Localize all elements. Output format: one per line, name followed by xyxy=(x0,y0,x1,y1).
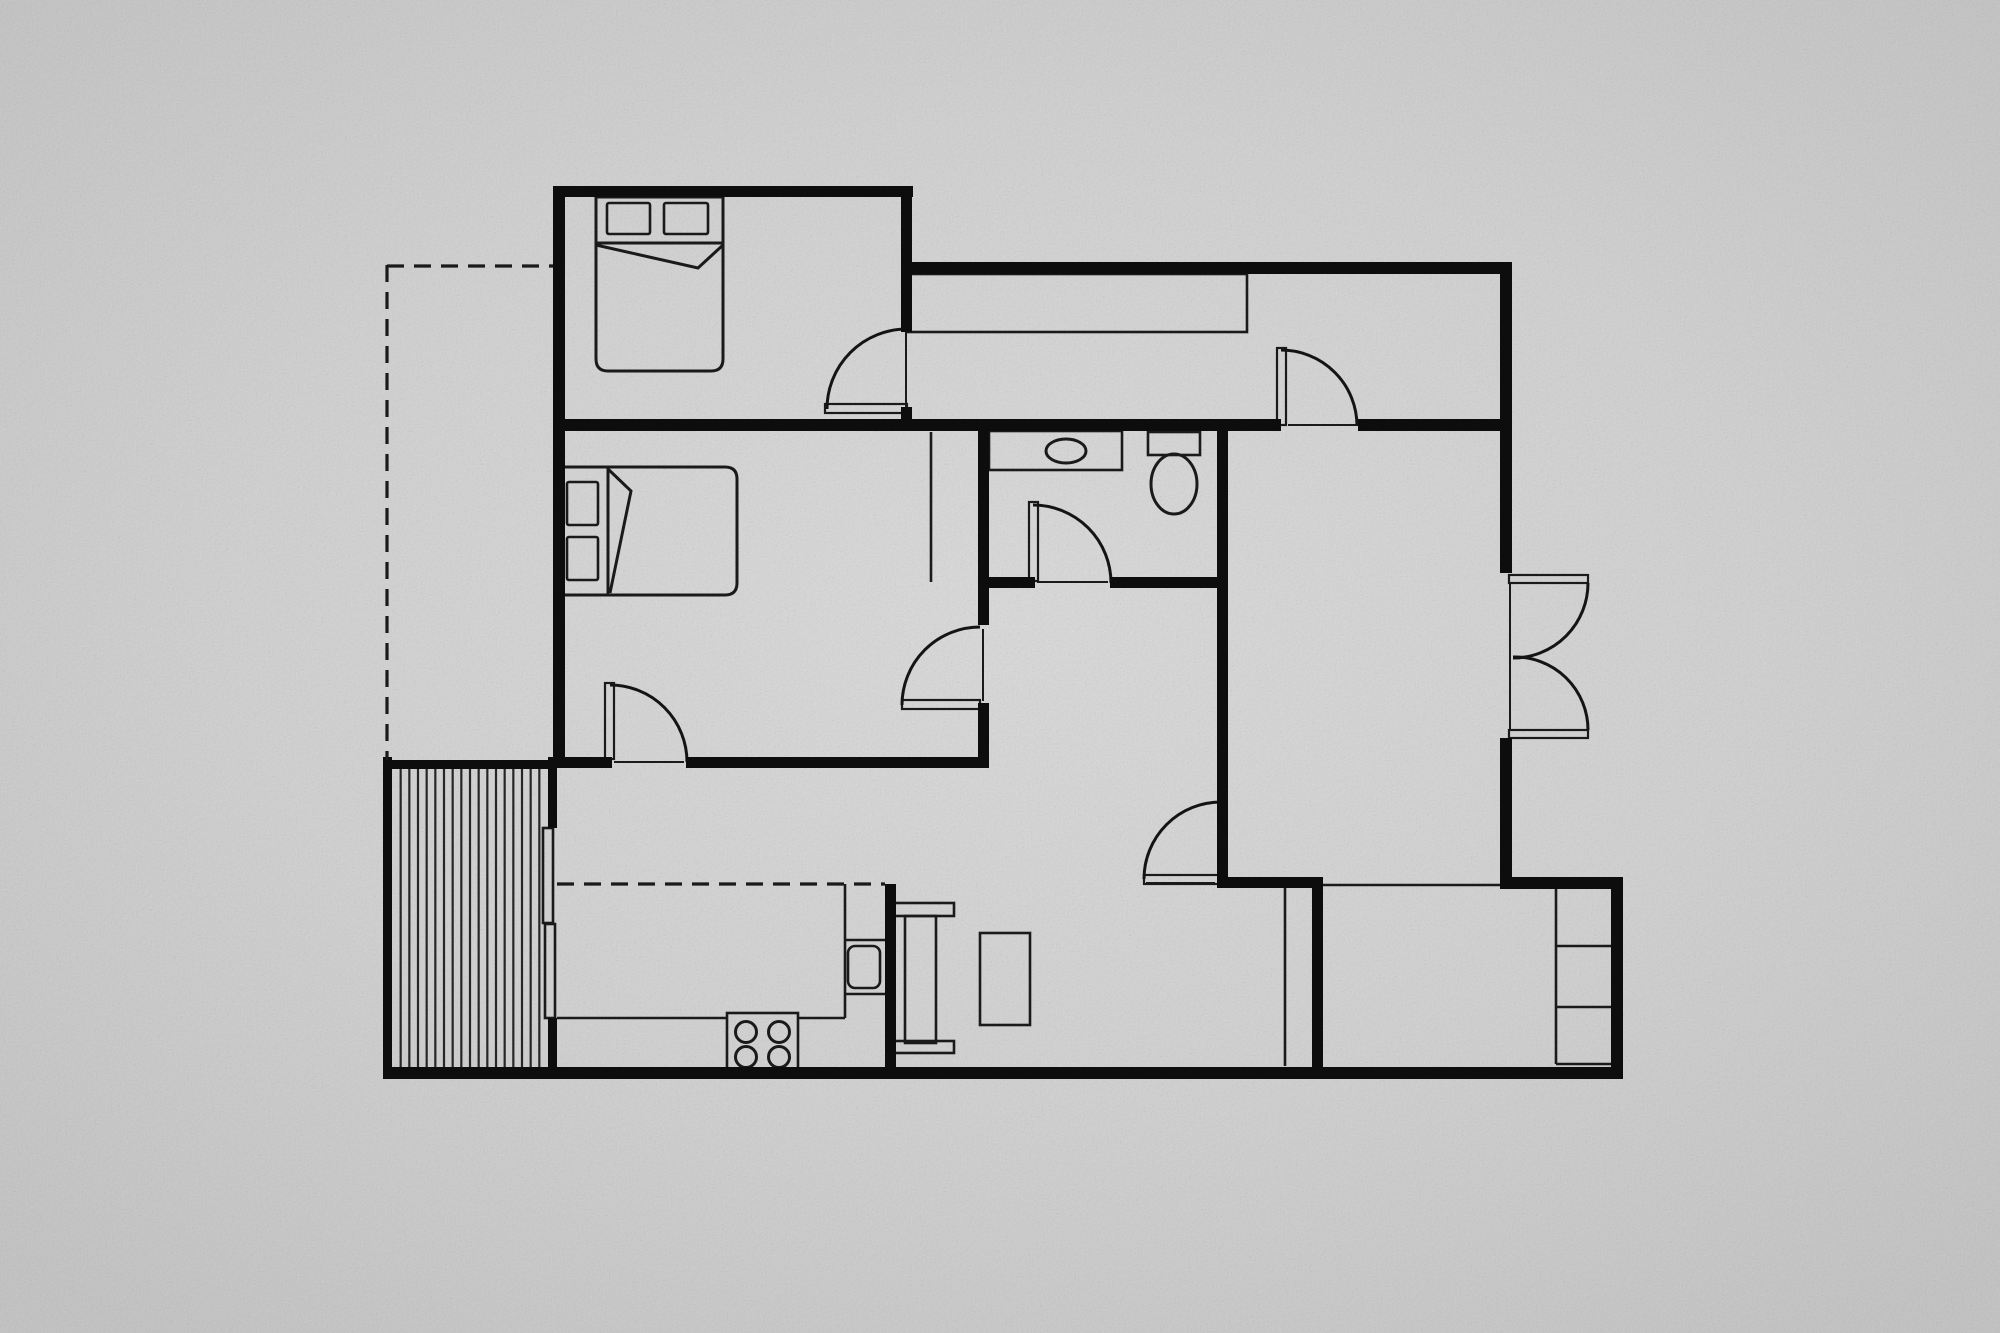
hall-door-wall xyxy=(1217,877,1323,888)
se-room-wall-north xyxy=(1500,877,1623,889)
deck-wall-west xyxy=(383,757,392,1079)
storage-wall-east xyxy=(1312,884,1323,1067)
deck-wall-north xyxy=(383,760,555,769)
north-wing-wall-top xyxy=(905,262,1512,274)
floor-plan-drawing xyxy=(0,0,2000,1333)
center-wall-band-east xyxy=(1358,419,1512,431)
bedroom2-wall-east-upper xyxy=(978,431,989,625)
south-wall xyxy=(383,1067,1623,1079)
bedroom1-wall-east-upper xyxy=(901,186,912,332)
east-wall-upper xyxy=(1500,262,1512,573)
bedroom2-wall-south-west xyxy=(553,757,612,768)
bathroom-wall-south-west xyxy=(989,577,1035,588)
east-wall-lower xyxy=(1611,877,1623,1079)
livingroom-wall-east xyxy=(1217,431,1228,884)
floor-plan-canvas xyxy=(0,0,2000,1333)
bedroom1-wall-north xyxy=(553,186,913,197)
kitchen-wall-east xyxy=(885,884,896,1067)
bathroom-wall-south-east xyxy=(1110,577,1217,588)
concrete-texture xyxy=(0,0,2000,1333)
center-wall-band-west xyxy=(553,419,1281,431)
kitchen-wall-west-upper xyxy=(548,757,557,828)
west-wall xyxy=(553,186,565,768)
bedroom2-wall-south-east xyxy=(686,757,989,768)
bedroom1-wall-east-stub xyxy=(901,407,912,421)
east-wall-mid xyxy=(1500,738,1512,884)
